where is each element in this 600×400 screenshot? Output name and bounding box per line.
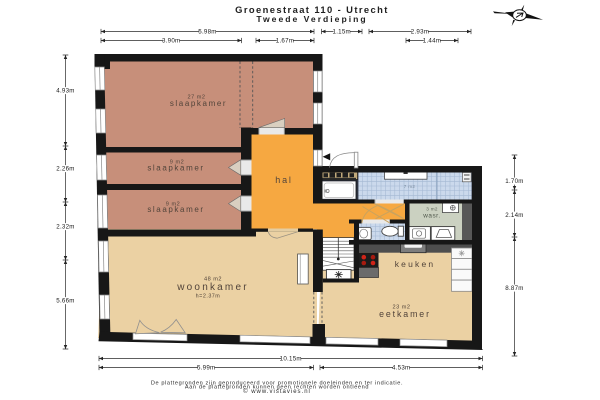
svg-text:woonkamer: woonkamer — [176, 282, 249, 293]
svg-text:4.53m: 4.53m — [392, 365, 410, 372]
svg-text:slaapkamer: slaapkamer — [147, 164, 204, 173]
svg-text:Tweede Verdieping: Tweede Verdieping — [256, 14, 367, 24]
svg-text:7 m2: 7 m2 — [404, 184, 416, 189]
svg-text:© www.vistavies.nl: © www.vistavies.nl — [243, 388, 311, 395]
svg-text:2.93m: 2.93m — [411, 29, 429, 36]
svg-text:1.15m: 1.15m — [333, 29, 351, 36]
svg-text:keuken: keuken — [395, 259, 436, 269]
svg-text:slaapkamer: slaapkamer — [147, 205, 204, 214]
svg-text:slaapkamer: slaapkamer — [170, 99, 227, 108]
svg-text:5.66m: 5.66m — [56, 298, 74, 305]
svg-text:eetkamer: eetkamer — [379, 309, 431, 319]
svg-text:2.14m: 2.14m — [505, 212, 523, 219]
svg-text:3.90m: 3.90m — [162, 38, 180, 45]
svg-text:hal: hal — [275, 175, 292, 185]
svg-text:5.98m: 5.98m — [198, 29, 216, 36]
svg-text:2.32m: 2.32m — [56, 224, 74, 231]
svg-text:h=2.37m: h=2.37m — [196, 294, 221, 300]
svg-text:5.99m: 5.99m — [197, 365, 215, 372]
svg-text:wasr.: wasr. — [422, 213, 440, 220]
svg-text:1.70m: 1.70m — [505, 178, 523, 185]
svg-text:4.93m: 4.93m — [56, 88, 74, 95]
svg-text:10.15m: 10.15m — [280, 356, 302, 363]
svg-text:1.44m: 1.44m — [423, 38, 441, 45]
svg-text:1.67m: 1.67m — [276, 38, 294, 45]
svg-text:2.26m: 2.26m — [56, 166, 74, 173]
svg-text:3 m2: 3 m2 — [426, 207, 438, 212]
svg-text:8.87m: 8.87m — [505, 285, 523, 292]
